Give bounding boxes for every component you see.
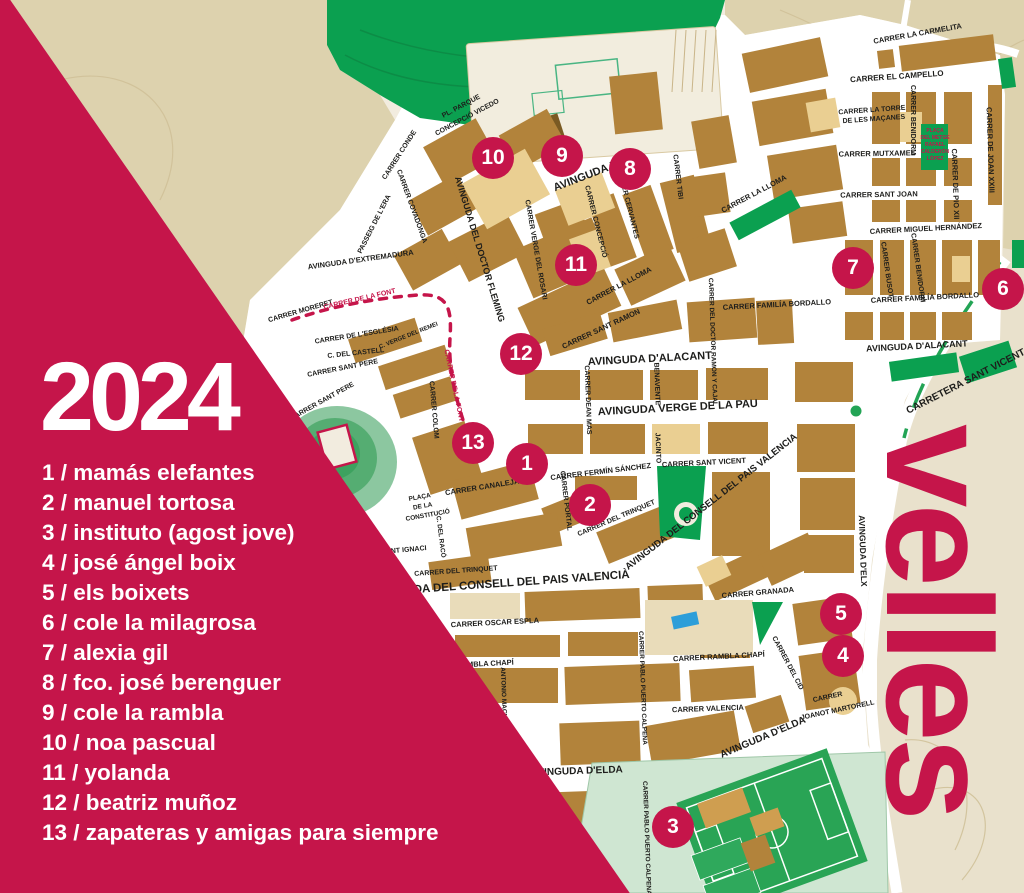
year-title: 2024 [40,348,236,445]
legend-item: 2 / manuel tortosa [42,488,438,518]
map-marker-3: 3 [652,806,694,848]
legend-item: 7 / alexia gil [42,638,438,668]
map-marker-8: 8 [609,148,651,190]
legend-item: 11 / yolanda [42,758,438,788]
roundabout-green [851,406,862,417]
legend-item: 3 / instituto (agost jove) [42,518,438,548]
map-marker-5: 5 [820,593,862,635]
map-marker-11: 11 [555,244,597,286]
street-label: CARRER MUTXAMEL [839,148,916,158]
legend-item: 13 / zapateras y amigas para siempre [42,818,438,848]
map-marker-12: 12 [500,333,542,375]
street-label: CARRER SANT JOAN [840,189,918,199]
map-marker-10: 10 [472,137,514,179]
plaza-label-line: RAFAEL [925,142,945,148]
legend-item: 6 / cole la milagrosa [42,608,438,638]
poster: CARRER LA CARMELITA CARRER EL CAMPELLO C… [0,0,1024,893]
legend-item: 10 / noa pascual [42,728,438,758]
plaza-label-line: LÓPEZ [927,154,944,162]
map-marker-2: 2 [569,484,611,526]
brand-wordmark: velles [854,424,1014,893]
legend-item: 5 / els boixets [42,578,438,608]
legend: 1 / mamás elefantes 2 / manuel tortosa 3… [42,458,438,848]
legend-item: 12 / beatriz muñoz [42,788,438,818]
legend-item: 1 / mamás elefantes [42,458,438,488]
map-marker-6: 6 [982,268,1024,310]
plaza-label-line: CALDERÓN [921,147,950,155]
map-marker-7: 7 [832,247,874,289]
plaza-label-line: DEL METGE [920,135,950,141]
legend-item: 9 / cole la rambla [42,698,438,728]
street-label: BENAVENTE [652,363,660,406]
map-marker-1: 1 [506,443,548,485]
plaza-label-line: PLAÇA [926,128,944,134]
map-marker-9: 9 [541,135,583,177]
legend-item: 4 / josé ángel boix [42,548,438,578]
map-marker-4: 4 [822,635,864,677]
street-label: JACINTO [653,433,661,464]
map-marker-13: 13 [452,422,494,464]
legend-item: 8 / fco. josé berenguer [42,668,438,698]
street-label: CARRER BENIDORM [909,85,916,155]
